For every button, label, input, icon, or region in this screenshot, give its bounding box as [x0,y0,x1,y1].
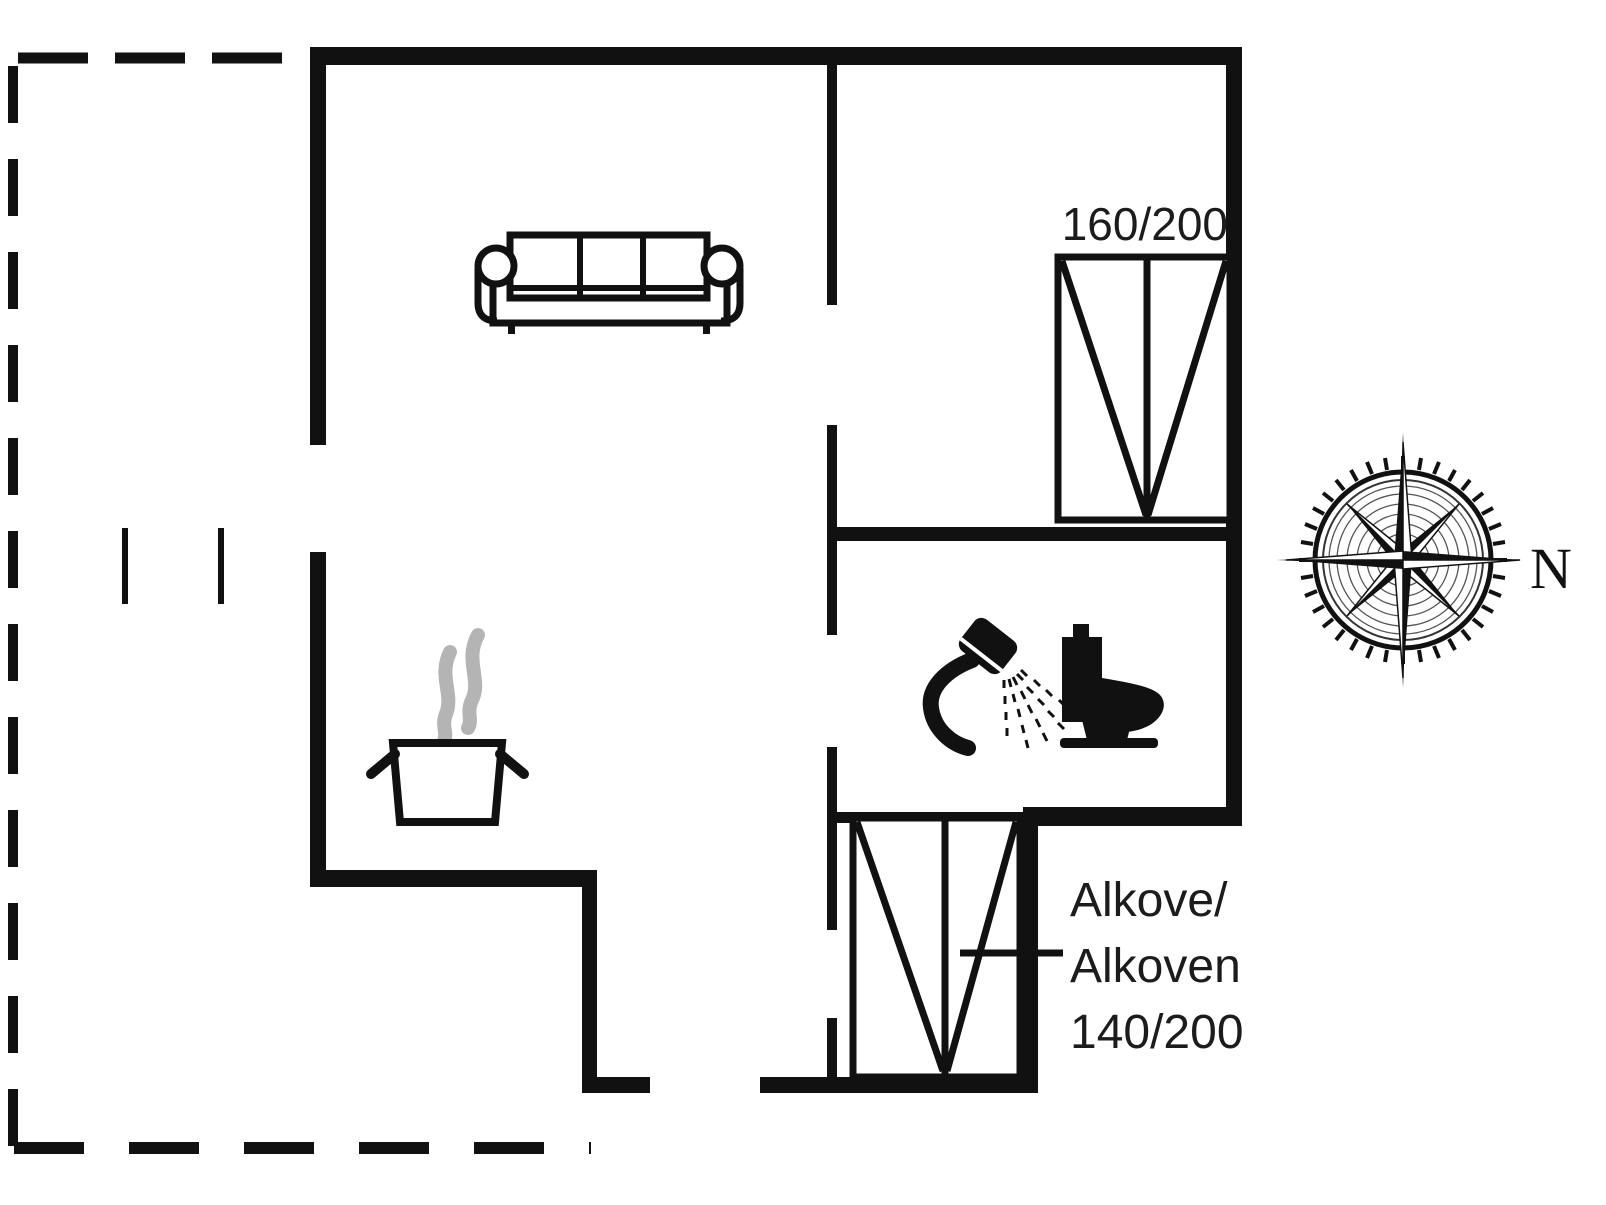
wall-interior-upper [827,65,837,305]
alcove-label-line2: Alkoven [1070,940,1241,993]
wall-top [310,47,1242,65]
double-bed-icon [1058,257,1230,520]
steam-icon [444,635,478,741]
sofa-icon [478,235,740,334]
wall-interior-alcove [827,1018,837,1077]
compass-rose-icon: N [1277,432,1572,688]
wall-bath-bottom-right [1023,807,1242,826]
wall-interior-lower [827,747,837,930]
floor-plan-canvas: 160/200 Alkove/ Alkoven 140/200 [0,0,1606,1205]
wall-left-kitchen [310,552,326,887]
terrace-door-markers [122,528,224,604]
cooking-pot-icon [371,743,524,822]
shower-icon [931,614,1065,748]
interior-walls [827,65,837,1077]
compass-north-label: N [1530,536,1572,601]
wall-kitchen-step [582,870,597,1093]
alcove-label-line3: 140/200 [1070,1006,1244,1059]
wall-step-foot [582,1077,650,1093]
toilet-icon [1060,624,1164,748]
terrace-dashed-outline [13,58,591,1152]
shower-spray [1004,670,1065,748]
wall-interior-mid [827,425,837,635]
floor-plan-page: 160/200 Alkove/ Alkoven 140/200 [0,0,1606,1205]
wall-kitchen-bottom [310,870,597,887]
wall-bath-top [827,527,1242,541]
bedroom-bed-size-label: 160/200 [1062,198,1228,250]
wall-left-upper [310,47,326,445]
alcove-label-line1: Alkove/ [1070,874,1228,927]
